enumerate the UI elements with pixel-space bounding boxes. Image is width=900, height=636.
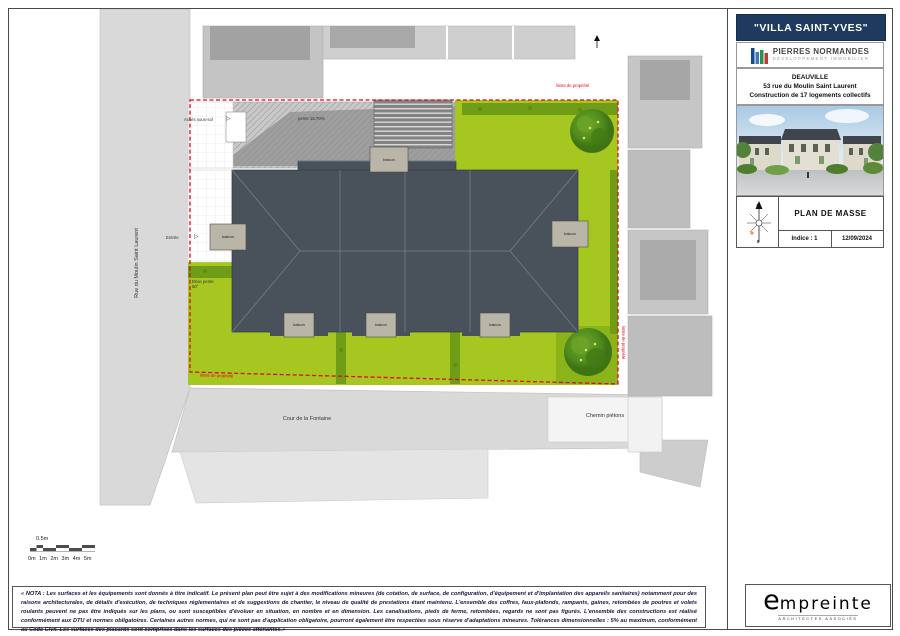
balcony-label: balcon	[555, 231, 585, 236]
north-marker	[594, 35, 600, 48]
drawing-title: PLAN DE MASSE	[778, 197, 883, 230]
developer-logo-box: PIERRES NORMANDES DÉVELOPPEMENT IMMOBILI…	[736, 42, 884, 68]
architect-logo: empreinte	[763, 590, 873, 614]
plan-sheet: Rue du Moulin Saint Laurent Cour de la F…	[0, 0, 900, 636]
nota-disclaimer: « NOTA : Les surfaces et les équipements…	[12, 586, 706, 628]
compass-south-label: S	[752, 239, 764, 244]
drawing-indice: Indice : 1	[778, 230, 831, 247]
title-block-divider	[727, 8, 728, 629]
balcony-label: balcon	[213, 234, 243, 239]
slope-break-label: Brise pente 60°	[192, 280, 218, 290]
project-address-box: DEAUVILLE 53 rue du Moulin Saint Laurent…	[736, 68, 884, 105]
scale-bar: 0.5m 0m 1m 2m 3m 4m 5m	[28, 536, 118, 570]
entrance-label: Entrée	[166, 236, 179, 241]
compass-north-label: N	[752, 203, 764, 208]
property-limit-label-right: limite de propriété	[620, 326, 625, 359]
project-program: Construction de 17 logements collectifs	[749, 92, 870, 99]
scale-tick-labels: 0m 1m 2m 3m 4m 5m	[28, 556, 91, 562]
entrance-arrow-icon: ▷	[194, 234, 199, 241]
basement-access-label: Accès sous-sol	[184, 118, 213, 123]
architect-logo-box: empreinte architectes associés	[745, 584, 891, 627]
developer-subtitle: DÉVELOPPEMENT IMMOBILIER	[773, 57, 870, 62]
basement-access-arrow-icon: ▷	[226, 116, 231, 123]
architect-tagline: architectes associés	[778, 615, 857, 621]
scale-bar-graphic	[30, 544, 100, 554]
balcony-label: balcon	[284, 322, 314, 327]
project-title: "VILLA SAINT-YVES"	[754, 22, 868, 34]
architect-logo-rest: mpreinte	[780, 594, 873, 614]
building-roof	[232, 161, 578, 336]
site-plan-drawing	[9, 9, 727, 585]
balcony-label: balcon	[366, 322, 396, 327]
project-rendering-image	[736, 105, 884, 196]
street-label-rue-du-moulin: Rue du Moulin Saint Laurent	[134, 218, 140, 308]
balcony-label: balcon	[374, 157, 404, 162]
scale-half-meter-label: 0.5m	[36, 536, 48, 542]
street-label-cour-de-la-fontaine: Cour de la Fontaine	[262, 416, 352, 422]
developer-logo-icon	[751, 45, 769, 65]
project-city: DEAUVILLE	[792, 74, 828, 81]
balcony-label: balcon	[480, 322, 510, 327]
architect-logo-initial: e	[763, 590, 780, 612]
project-title-bar: "VILLA SAINT-YVES"	[736, 14, 886, 41]
ramp-slope-label: pente 15.70%	[298, 117, 325, 122]
property-limit-label-top: limite de propriété	[556, 84, 589, 89]
property-limit-label-bottom: limite de propriété	[200, 374, 233, 380]
project-street: 53 rue du Moulin Saint Laurent	[763, 83, 856, 90]
rendering-graphic	[737, 106, 883, 195]
drawing-date: 12/09/2024	[831, 230, 883, 247]
path-label-chemin-pietons: Chemin piétons	[552, 413, 658, 419]
